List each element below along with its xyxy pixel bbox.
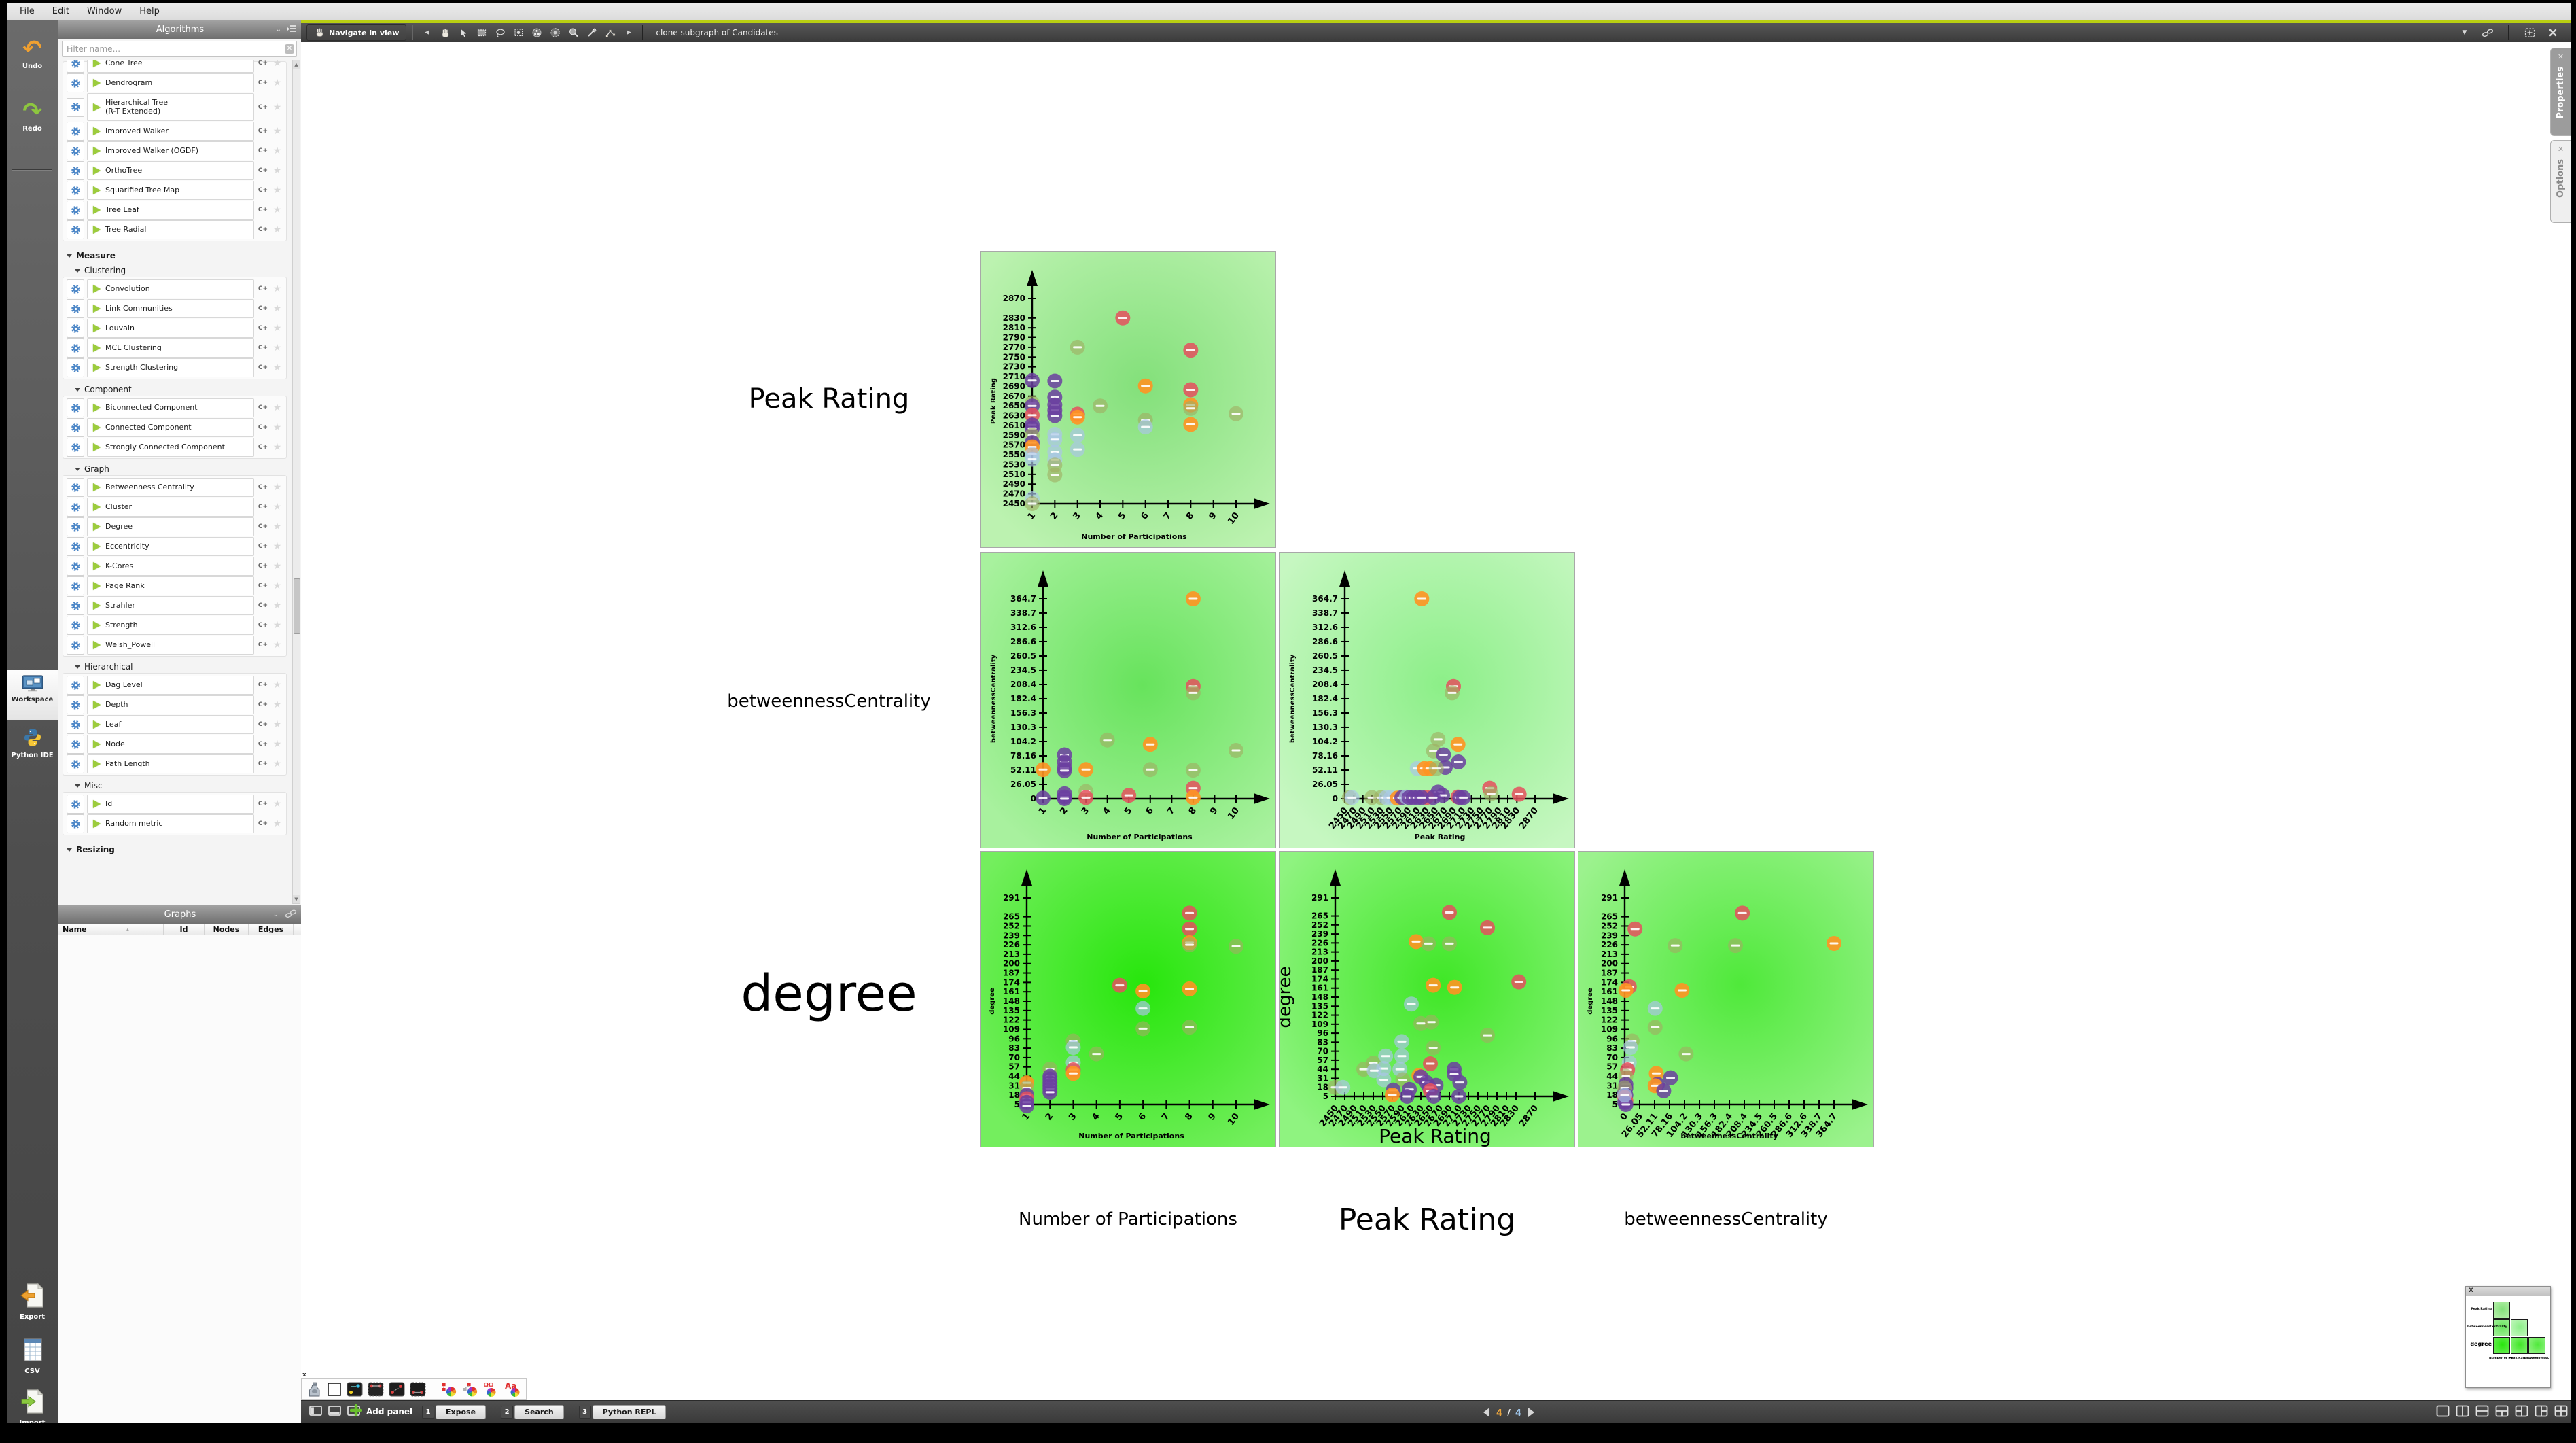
- node-point[interactable]: [1135, 984, 1150, 998]
- algorithm-run-button[interactable]: OrthoTree: [87, 161, 254, 180]
- algorithm-run-button[interactable]: Depth: [87, 695, 254, 714]
- algorithm-item-improved-walker[interactable]: Improved WalkerC+★: [67, 122, 283, 140]
- scatter-plot-degree-vs-number-of-participations[interactable]: 5183144577083961091221351481611741872002…: [980, 851, 1276, 1147]
- close-icon[interactable]: ✕: [2558, 145, 2564, 154]
- algo-subsection-graph[interactable]: Graph: [75, 464, 289, 474]
- gear-icon[interactable]: [67, 596, 84, 615]
- code-icon[interactable]: C+: [257, 563, 269, 570]
- gear-icon[interactable]: [67, 338, 84, 358]
- code-icon[interactable]: C+: [257, 305, 269, 312]
- node-point[interactable]: [1627, 922, 1642, 937]
- minimap-content[interactable]: Peak RatingbetweennessCentralitydegreeNu…: [2466, 1296, 2550, 1388]
- scatter-plot-betweennesscentrality-vs-peak-rating[interactable]: 026.0552.1178.16104.2130.3156.3182.4208.…: [1279, 552, 1575, 848]
- node-point[interactable]: [1025, 496, 1040, 511]
- code-icon[interactable]: C+: [257, 741, 269, 748]
- algorithm-item-k-cores[interactable]: K-CoresC+★: [67, 557, 283, 575]
- layout-grid-four-icon[interactable]: [2554, 1405, 2568, 1420]
- algorithm-item-improved-walker-ogdf-[interactable]: Improved Walker (OGDF)C+★: [67, 142, 283, 160]
- node-point[interactable]: [1421, 936, 1436, 951]
- node-point[interactable]: [1728, 938, 1743, 953]
- expose-button[interactable]: Expose: [436, 1405, 486, 1419]
- algorithm-item-id[interactable]: IdC+★: [67, 795, 283, 813]
- algorithm-run-button[interactable]: Id: [87, 795, 254, 814]
- algorithm-run-button[interactable]: Squarified Tree Map: [87, 181, 254, 200]
- color-mapping-nodes-icon[interactable]: [441, 1381, 457, 1397]
- algorithm-item-dag-level[interactable]: Dag LevelC+★: [67, 676, 283, 694]
- algorithm-item-cone-tree[interactable]: Cone TreeC+★: [67, 60, 283, 72]
- node-point[interactable]: [1036, 762, 1051, 777]
- favorite-star-icon[interactable]: ★: [272, 680, 283, 690]
- favorite-star-icon[interactable]: ★: [272, 759, 283, 769]
- favorite-star-icon[interactable]: ★: [272, 799, 283, 809]
- algorithm-run-button[interactable]: Welsh_Powell: [87, 636, 254, 655]
- selection-icon[interactable]: [455, 25, 472, 40]
- favorite-star-icon[interactable]: ★: [272, 60, 283, 68]
- node-point[interactable]: [1183, 401, 1198, 416]
- scrollbar-thumb[interactable]: [294, 578, 300, 634]
- collapse-chevron-icon[interactable]: ⌄: [273, 911, 279, 918]
- options-dropdown-icon[interactable]: ▼: [2456, 25, 2473, 40]
- layout-two-left-one-right-icon[interactable]: [2515, 1405, 2528, 1420]
- node-point[interactable]: [1089, 1047, 1104, 1062]
- favorite-star-icon[interactable]: ★: [272, 186, 283, 195]
- node-point[interactable]: [1452, 1075, 1467, 1090]
- node-point[interactable]: [1186, 790, 1201, 805]
- gear-icon[interactable]: [67, 161, 84, 180]
- algorithm-run-button[interactable]: Betweenness Centrality: [87, 478, 254, 497]
- dye-fill-icon[interactable]: [307, 1381, 322, 1397]
- code-icon[interactable]: C+: [257, 364, 269, 371]
- panel-left-icon[interactable]: [309, 1406, 322, 1419]
- code-icon[interactable]: C+: [257, 523, 269, 530]
- node-point[interactable]: [1093, 398, 1108, 413]
- code-icon[interactable]: C+: [257, 60, 269, 67]
- code-icon[interactable]: C+: [257, 761, 269, 767]
- gear-icon[interactable]: [67, 279, 84, 298]
- overview-minimap-window[interactable]: X Peak RatingbetweennessCentralitydegree…: [2465, 1286, 2551, 1388]
- node-point[interactable]: [1335, 1080, 1350, 1095]
- node-point[interactable]: [1423, 1056, 1438, 1071]
- code-icon[interactable]: C+: [257, 104, 269, 111]
- node-point[interactable]: [1426, 790, 1441, 805]
- node-point[interactable]: [1070, 442, 1085, 457]
- node-point[interactable]: [1229, 939, 1243, 954]
- algorithm-run-button[interactable]: Degree: [87, 517, 254, 536]
- gear-icon[interactable]: [67, 122, 84, 141]
- neighborhood-icon[interactable]: [529, 25, 545, 40]
- node-point[interactable]: [1400, 1089, 1415, 1104]
- node-point[interactable]: [1229, 406, 1243, 421]
- lasso-selection-icon[interactable]: [492, 25, 508, 40]
- algorithm-item-convolution[interactable]: ConvolutionC+★: [67, 280, 283, 298]
- gear-icon[interactable]: [67, 557, 84, 576]
- gear-icon[interactable]: [67, 478, 84, 497]
- algorithm-run-button[interactable]: Leaf: [87, 715, 254, 734]
- panel-menu-icon[interactable]: [287, 24, 298, 36]
- algorithm-item-louvain[interactable]: LouvainC+★: [67, 319, 283, 337]
- favorite-star-icon[interactable]: ★: [272, 442, 283, 452]
- node-point[interactable]: [1183, 417, 1198, 432]
- node-point[interactable]: [1674, 983, 1689, 998]
- node-point[interactable]: [1065, 1066, 1080, 1081]
- redo-button[interactable]: ↷ Redo: [7, 99, 58, 160]
- code-icon[interactable]: C+: [257, 325, 269, 332]
- favorite-star-icon[interactable]: ★: [272, 146, 283, 156]
- node-point[interactable]: [1429, 761, 1444, 776]
- python-ide-button[interactable]: Python IDE: [7, 723, 58, 773]
- node-point[interactable]: [1070, 428, 1085, 442]
- node-point[interactable]: [1019, 1098, 1034, 1113]
- favorite-star-icon[interactable]: ★: [272, 403, 283, 413]
- algo-subsection-clustering[interactable]: Clustering: [75, 266, 289, 275]
- gear-icon[interactable]: [67, 73, 84, 92]
- code-icon[interactable]: C+: [257, 187, 269, 194]
- algorithm-item-tree-leaf[interactable]: Tree LeafC+★: [67, 201, 283, 219]
- algorithm-item-strength-clustering[interactable]: Strength ClusteringC+★: [67, 359, 283, 377]
- previous-tool-icon[interactable]: ◀: [419, 25, 435, 40]
- algorithm-run-button[interactable]: Connected Component: [87, 418, 254, 437]
- code-icon[interactable]: C+: [257, 345, 269, 351]
- node-point[interactable]: [1143, 737, 1158, 752]
- side-tab-properties[interactable]: ✕Properties: [2550, 48, 2571, 136]
- node-point[interactable]: [1456, 790, 1471, 805]
- algorithm-run-button[interactable]: Random metric: [87, 814, 254, 833]
- fisheye-icon[interactable]: [547, 25, 563, 40]
- favorite-star-icon[interactable]: ★: [272, 700, 283, 710]
- node-point[interactable]: [1413, 1016, 1428, 1031]
- node-point[interactable]: [1827, 936, 1841, 951]
- algorithm-run-button[interactable]: Cone Tree: [87, 60, 254, 73]
- favorite-star-icon[interactable]: ★: [272, 740, 283, 749]
- algorithm-item-eccentricity[interactable]: EccentricityC+★: [67, 538, 283, 555]
- node-point[interactable]: [1648, 1020, 1663, 1035]
- node-point[interactable]: [1135, 1001, 1150, 1016]
- next-tool-icon[interactable]: ▶: [620, 25, 637, 40]
- code-icon[interactable]: C+: [257, 484, 269, 491]
- favorite-star-icon[interactable]: ★: [272, 205, 283, 215]
- gear-icon[interactable]: [67, 735, 84, 754]
- code-icon[interactable]: C+: [257, 701, 269, 708]
- algorithm-item-mcl-clustering[interactable]: MCL ClusteringC+★: [67, 339, 283, 357]
- code-icon[interactable]: C+: [257, 583, 269, 589]
- node-color-dark-3-icon[interactable]: [389, 1382, 405, 1397]
- algorithms-panel-header[interactable]: Algorithms ⌄: [58, 20, 302, 39]
- side-tab-options[interactable]: ✕Options: [2550, 140, 2571, 223]
- algorithm-item-strongly-connected-component[interactable]: Strongly Connected ComponentC+★: [67, 438, 283, 456]
- gear-icon[interactable]: [67, 576, 84, 595]
- algorithm-run-button[interactable]: Strongly Connected Component: [87, 438, 254, 457]
- code-icon[interactable]: C+: [257, 167, 269, 174]
- node-point[interactable]: [1617, 1088, 1632, 1102]
- favorite-star-icon[interactable]: ★: [272, 542, 283, 551]
- layout-two-columns-icon[interactable]: [2456, 1405, 2469, 1420]
- algorithm-run-button[interactable]: Strength Clustering: [87, 358, 254, 377]
- code-icon[interactable]: C+: [257, 682, 269, 689]
- close-view-icon[interactable]: [2545, 25, 2561, 40]
- algorithm-item-welsh-powell[interactable]: Welsh_PowellC+★: [67, 636, 283, 654]
- color-mapping-all-icon[interactable]: [483, 1381, 499, 1397]
- node-point[interactable]: [1135, 1021, 1150, 1036]
- algorithm-item-connected-component[interactable]: Connected ComponentC+★: [67, 419, 283, 436]
- algorithm-item-betweenness-centrality[interactable]: Betweenness CentralityC+★: [67, 479, 283, 496]
- node-point[interactable]: [1047, 468, 1062, 483]
- algorithm-item-strength[interactable]: StrengthC+★: [67, 616, 283, 634]
- hand-navigate-icon[interactable]: [437, 25, 453, 40]
- node-point[interactable]: [1648, 1001, 1663, 1016]
- link-views-icon[interactable]: [2480, 25, 2496, 40]
- node-point[interactable]: [1483, 786, 1498, 801]
- magnifying-glass-icon[interactable]: [565, 25, 582, 40]
- algorithm-run-button[interactable]: K-Cores: [87, 557, 254, 576]
- algorithm-run-button[interactable]: Improved Walker: [87, 122, 254, 141]
- algorithm-item-path-length[interactable]: Path LengthC+★: [67, 755, 283, 773]
- node-point[interactable]: [1385, 1088, 1400, 1102]
- python-repl-button[interactable]: Python REPL: [593, 1405, 667, 1419]
- minimap-close-button[interactable]: X: [2469, 1287, 2473, 1294]
- algorithm-run-button[interactable]: Biconnected Component: [87, 398, 254, 417]
- favorite-star-icon[interactable]: ★: [272, 103, 283, 112]
- algorithm-item-random-metric[interactable]: Random metricC+★: [67, 815, 283, 833]
- node-point[interactable]: [1426, 1041, 1441, 1056]
- algorithm-item-degree[interactable]: DegreeC+★: [67, 518, 283, 536]
- code-icon[interactable]: C+: [257, 602, 269, 609]
- node-point[interactable]: [1186, 763, 1201, 778]
- algorithm-item-page-rank[interactable]: Page RankC+★: [67, 577, 283, 595]
- node-point[interactable]: [1623, 1040, 1638, 1055]
- node-point[interactable]: [1112, 978, 1127, 993]
- node-point[interactable]: [1394, 1034, 1409, 1049]
- fit-to-view-icon[interactable]: [2522, 25, 2538, 40]
- node-point[interactable]: [1735, 905, 1750, 920]
- menu-edit[interactable]: Edit: [43, 3, 78, 20]
- node-point[interactable]: [1182, 905, 1197, 920]
- algorithm-run-button[interactable]: Tree Leaf: [87, 201, 254, 220]
- scatter-plot-degree-vs-betweennesscentrality[interactable]: 5183144577083961091221351481611741872002…: [1578, 851, 1874, 1147]
- node-point[interactable]: [1186, 685, 1201, 700]
- favorite-star-icon[interactable]: ★: [272, 502, 283, 512]
- node-point[interactable]: [1182, 1020, 1197, 1035]
- gear-icon[interactable]: [67, 201, 84, 220]
- algorithm-run-button[interactable]: Improved Walker (OGDF): [87, 141, 254, 160]
- algorithm-item-squarified-tree-map[interactable]: Squarified Tree MapC+★: [67, 181, 283, 199]
- node-color-dark-4-icon[interactable]: [410, 1382, 426, 1397]
- link-icon[interactable]: [284, 908, 298, 922]
- node-point[interactable]: [1070, 340, 1085, 355]
- algorithm-run-button[interactable]: Strength: [87, 616, 254, 635]
- undo-button[interactable]: ↶ Undo: [7, 37, 58, 98]
- csv-button[interactable]: CSV: [7, 1336, 58, 1385]
- gear-icon[interactable]: [67, 676, 84, 695]
- favorite-star-icon[interactable]: ★: [272, 483, 283, 492]
- scroll-down-icon[interactable]: ▼: [293, 895, 300, 903]
- favorite-star-icon[interactable]: ★: [272, 621, 283, 630]
- favorite-star-icon[interactable]: ★: [272, 166, 283, 175]
- node-color-dark-2-icon[interactable]: [368, 1382, 384, 1397]
- code-icon[interactable]: C+: [257, 424, 269, 431]
- node-point[interactable]: [1138, 379, 1153, 394]
- gear-icon[interactable]: [67, 141, 84, 160]
- node-point[interactable]: [1100, 733, 1115, 748]
- node-point[interactable]: [1138, 419, 1153, 434]
- node-point[interactable]: [1436, 748, 1451, 763]
- node-point[interactable]: [1057, 791, 1072, 806]
- node-point[interactable]: [1451, 754, 1466, 769]
- gear-icon[interactable]: [67, 715, 84, 734]
- gear-icon[interactable]: [67, 418, 84, 437]
- code-icon[interactable]: C+: [257, 404, 269, 411]
- graphs-column-name[interactable]: Name▴: [58, 924, 164, 935]
- scatter-plot-peak-rating-vs-number-of-participations[interactable]: 2450247024902510253025502570259026102630…: [980, 251, 1276, 548]
- node-point[interactable]: [1426, 1089, 1441, 1104]
- gear-icon[interactable]: [67, 616, 84, 635]
- node-point[interactable]: [1186, 591, 1201, 606]
- node-point[interactable]: [1229, 743, 1243, 758]
- gear-icon[interactable]: [67, 358, 84, 377]
- node-point[interactable]: [1047, 374, 1062, 389]
- node-point[interactable]: [1182, 937, 1197, 952]
- next-page-icon[interactable]: [1528, 1408, 1534, 1417]
- node-point[interactable]: [1451, 737, 1466, 752]
- node-point[interactable]: [1025, 373, 1040, 388]
- filter-clear-icon[interactable]: ✕: [285, 44, 294, 54]
- code-icon[interactable]: C+: [257, 820, 269, 827]
- algorithm-run-button[interactable]: Cluster: [87, 498, 254, 517]
- node-point[interactable]: [1182, 981, 1197, 996]
- node-point[interactable]: [1394, 1049, 1409, 1064]
- algo-subsection-misc[interactable]: Misc: [75, 781, 289, 790]
- gear-icon[interactable]: [67, 98, 84, 117]
- node-point[interactable]: [1445, 685, 1460, 700]
- gear-icon[interactable]: [67, 398, 84, 417]
- node-point[interactable]: [1668, 938, 1682, 953]
- zoom-tool-icon[interactable]: [584, 25, 600, 40]
- edge-bend-editor-icon[interactable]: [602, 25, 618, 40]
- node-point[interactable]: [1036, 790, 1051, 805]
- node-point[interactable]: [1345, 790, 1360, 805]
- favorite-star-icon[interactable]: ★: [272, 126, 283, 136]
- quickbar-close-button[interactable]: x: [302, 1372, 306, 1378]
- export-button[interactable]: Export: [7, 1282, 58, 1331]
- node-point[interactable]: [1057, 763, 1072, 778]
- algorithm-item-node[interactable]: NodeC+★: [67, 735, 283, 753]
- algorithm-item-tree-radial[interactable]: Tree RadialC+★: [67, 221, 283, 239]
- favorite-star-icon[interactable]: ★: [272, 819, 283, 829]
- favorite-star-icon[interactable]: ★: [272, 284, 283, 294]
- gear-icon[interactable]: [67, 754, 84, 773]
- scroll-up-icon[interactable]: ▲: [293, 60, 300, 69]
- algorithm-scrollbar[interactable]: ▲ ▼: [292, 60, 300, 904]
- layout-one-top-two-bottom-icon[interactable]: [2495, 1405, 2509, 1420]
- code-icon[interactable]: C+: [257, 504, 269, 510]
- algorithm-run-button[interactable]: Tree Radial: [87, 220, 254, 239]
- zoom-box-icon[interactable]: [474, 25, 490, 40]
- node-point[interactable]: [1656, 1083, 1671, 1098]
- favorite-star-icon[interactable]: ★: [272, 343, 283, 353]
- node-point[interactable]: [1619, 983, 1634, 998]
- algo-subsection-hierarchical[interactable]: Hierarchical: [75, 662, 289, 672]
- algorithm-item-leaf[interactable]: LeafC+★: [67, 716, 283, 733]
- code-icon[interactable]: C+: [257, 543, 269, 550]
- scatter-plot-degree-vs-peak-rating[interactable]: 5183144577083961091221351481611741872002…: [1279, 851, 1575, 1147]
- node-point[interactable]: [1042, 1085, 1057, 1100]
- node-point[interactable]: [1442, 905, 1457, 920]
- favorite-star-icon[interactable]: ★: [272, 581, 283, 591]
- menu-file[interactable]: File: [11, 3, 43, 20]
- algorithm-run-button[interactable]: Louvain: [87, 319, 254, 338]
- graphs-column-id[interactable]: Id: [164, 924, 205, 935]
- layout-one-left-two-right-icon[interactable]: [2535, 1405, 2548, 1420]
- algorithm-item-cluster[interactable]: ClusterC+★: [67, 498, 283, 516]
- navigate-in-view-button[interactable]: Navigate in view: [306, 24, 406, 41]
- favorite-star-icon[interactable]: ★: [272, 640, 283, 650]
- scatter-plot-betweennesscentrality-vs-number-of-participations[interactable]: 026.0552.1178.16104.2130.3156.3182.4208.…: [980, 552, 1276, 848]
- menu-help[interactable]: Help: [130, 3, 169, 20]
- gear-icon[interactable]: [67, 438, 84, 457]
- algorithm-run-button[interactable]: Dag Level: [87, 676, 254, 695]
- node-point[interactable]: [1414, 591, 1429, 606]
- algorithm-run-button[interactable]: Convolution: [87, 279, 254, 298]
- node-point[interactable]: [1404, 996, 1419, 1011]
- code-icon[interactable]: C+: [257, 128, 269, 135]
- node-point[interactable]: [1442, 936, 1457, 951]
- gear-icon[interactable]: [67, 220, 84, 239]
- layout-single-icon[interactable]: [2436, 1405, 2450, 1420]
- close-icon[interactable]: ✕: [2558, 52, 2564, 61]
- node-point[interactable]: [1143, 762, 1158, 777]
- workspace-button[interactable]: Workspace: [7, 670, 58, 720]
- graphs-column-edges[interactable]: Edges: [249, 924, 294, 935]
- node-point[interactable]: [1078, 762, 1093, 777]
- code-icon[interactable]: C+: [257, 147, 269, 154]
- favorite-star-icon[interactable]: ★: [272, 324, 283, 333]
- node-point[interactable]: [1115, 311, 1130, 326]
- background-color-icon[interactable]: [327, 1382, 342, 1397]
- favorite-star-icon[interactable]: ★: [272, 225, 283, 234]
- gear-icon[interactable]: [67, 636, 84, 655]
- algo-section-resizing[interactable]: Resizing: [67, 845, 289, 854]
- panel-bottom-icon[interactable]: [328, 1406, 341, 1419]
- code-icon[interactable]: C+: [257, 207, 269, 213]
- code-icon[interactable]: C+: [257, 444, 269, 451]
- code-icon[interactable]: C+: [257, 642, 269, 648]
- code-icon[interactable]: C+: [257, 622, 269, 629]
- algorithm-run-button[interactable]: MCL Clustering: [87, 338, 254, 358]
- algo-subsection-component[interactable]: Component: [75, 385, 289, 394]
- favorite-star-icon[interactable]: ★: [272, 720, 283, 729]
- algorithm-item-strahler[interactable]: StrahlerC+★: [67, 597, 283, 614]
- label-color-icon[interactable]: Aa: [504, 1381, 521, 1397]
- node-color-dark-1-icon[interactable]: [347, 1382, 363, 1397]
- node-point[interactable]: [1183, 343, 1198, 358]
- favorite-star-icon[interactable]: ★: [272, 561, 283, 571]
- favorite-star-icon[interactable]: ★: [272, 522, 283, 532]
- favorite-star-icon[interactable]: ★: [272, 363, 283, 372]
- node-point[interactable]: [1678, 1047, 1693, 1062]
- node-point[interactable]: [1447, 980, 1462, 995]
- code-icon[interactable]: C+: [257, 801, 269, 807]
- algorithm-item-hierarchical-tree[interactable]: Hierarchical Tree (R-T Extended)C+★: [67, 94, 283, 120]
- previous-page-icon[interactable]: [1483, 1408, 1489, 1417]
- layout-two-rows-icon[interactable]: [2475, 1405, 2489, 1420]
- gear-icon[interactable]: [67, 814, 84, 833]
- node-point[interactable]: [1025, 452, 1040, 467]
- import-button[interactable]: Import: [7, 1388, 58, 1423]
- graphs-column-nodes[interactable]: Nodes: [205, 924, 249, 935]
- node-point[interactable]: [1065, 1040, 1080, 1055]
- node-point[interactable]: [1426, 978, 1441, 993]
- gear-icon[interactable]: [67, 517, 84, 536]
- algo-section-measure[interactable]: Measure: [67, 251, 289, 260]
